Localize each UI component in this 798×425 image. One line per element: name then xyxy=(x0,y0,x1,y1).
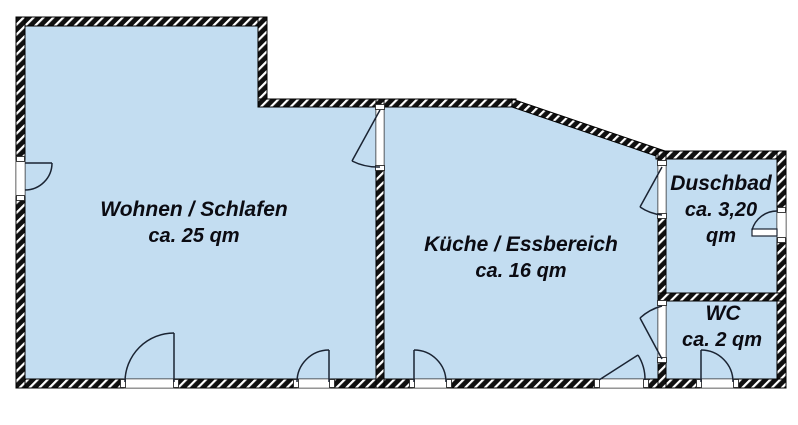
opening-wohnen-kueche xyxy=(376,108,384,166)
opening-wohnen-bottom-2 xyxy=(297,379,330,388)
label-wc: WC xyxy=(706,302,742,325)
wall-duschbad-top xyxy=(656,151,786,159)
opening-wohnen-bottom-1 xyxy=(124,379,174,388)
opening-kueche-bottom-1 xyxy=(413,379,447,388)
wall-partition-duschbad-wc xyxy=(658,293,786,301)
wall-exterior-left xyxy=(16,17,25,388)
label-duschbad-area-1: ca. 3,20 xyxy=(685,199,757,221)
label-wc-area: ca. 2 qm xyxy=(682,329,762,351)
opening-kueche-wc xyxy=(658,304,666,358)
label-kueche-essbereich: Küche / Essbereich xyxy=(424,233,618,256)
label-wohnen-schlafen: Wohnen / Schlafen xyxy=(100,198,287,221)
floor-plan: Wohnen / Schlafen ca. 25 qm Küche / Essb… xyxy=(0,0,798,425)
opening-duschbad-right xyxy=(777,211,786,238)
label-duschbad-area-2: qm xyxy=(706,225,736,247)
label-wohnen-area: ca. 25 qm xyxy=(148,225,239,247)
wall-kueche-top xyxy=(258,99,516,107)
opening-wc-bottom xyxy=(700,379,734,388)
wall-exterior-step xyxy=(258,17,267,107)
opening-kueche-bottom-2 xyxy=(598,379,644,388)
label-duschbad: Duschbad xyxy=(670,172,773,195)
label-kueche-area: ca. 16 qm xyxy=(475,260,566,282)
floor-plan-drawing: Wohnen / Schlafen ca. 25 qm Küche / Essb… xyxy=(0,0,798,425)
wall-exterior-right xyxy=(777,151,786,388)
opening-left-wall xyxy=(16,160,25,196)
wall-exterior-top xyxy=(16,17,267,26)
